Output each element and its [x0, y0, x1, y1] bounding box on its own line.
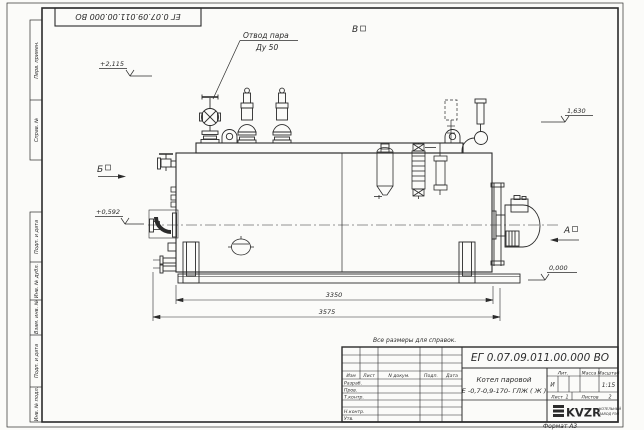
lit-value: И: [550, 382, 555, 389]
burner-unit: [492, 196, 540, 248]
elevation-0000: 0,000: [528, 264, 577, 280]
sig-row-label: Т.контр.: [344, 395, 364, 401]
product-name-line1: Котел паровой: [477, 376, 532, 384]
lit-label: Лит.: [557, 371, 569, 377]
sig-row-label: Пров.: [344, 388, 357, 394]
pressure-gauge-siphon: [462, 99, 488, 153]
left-angle-valve: [158, 154, 177, 171]
left-wall-nubs: [171, 187, 176, 207]
elevation-2115: +2,115: [99, 60, 152, 76]
sample-cooler: [374, 143, 393, 199]
svg-text:+2,115: +2,115: [100, 60, 124, 68]
margin-label: Взам. инв. №: [34, 300, 40, 334]
sig-row-label: Н.контр.: [344, 409, 365, 415]
svg-text:0,000: 0,000: [549, 264, 568, 272]
company-line1: КОТЕЛЬНЫЙ: [599, 406, 621, 411]
water-level-gauge-1: [412, 143, 425, 199]
company-line2: ЗАВОД РЭП: [599, 412, 620, 416]
water-level-gauge-2: [425, 143, 447, 195]
callout-line1: Отвод пара: [243, 31, 289, 40]
scale-value: 1:15: [602, 382, 616, 389]
support-saddles: [183, 242, 475, 283]
rev-header-doc: N докум.: [388, 373, 409, 379]
sig-row-label: Разраб.: [344, 381, 362, 387]
lifting-lug-left: [222, 130, 237, 143]
sheet-value: 1: [565, 395, 568, 401]
lifting-lug-right: [445, 130, 460, 143]
steam-outlet-callout: Отвод пара Ду 50: [213, 31, 298, 99]
margin-label: Подп. и дата: [34, 344, 40, 378]
margin-label: Подп. и дата: [34, 220, 40, 254]
steam-valve: [200, 95, 221, 144]
svg-text:В: В: [352, 25, 358, 35]
rev-header-date: Дата: [445, 373, 458, 379]
sig-row-label: Утв.: [344, 416, 354, 422]
callout-line2: Ду 50: [255, 43, 278, 52]
safety-valve-1: [238, 88, 256, 143]
elevation-1630: 1,630: [541, 107, 593, 122]
company-logo-text: KVZR: [566, 406, 601, 420]
feed-elbow: [149, 210, 178, 238]
base-frame-rail: [178, 274, 520, 283]
boiler-body: [148, 143, 560, 283]
dim-inner-text: 3350: [326, 291, 343, 299]
view-labels: Б В А: [97, 25, 579, 242]
company-logo: KVZR КОТЕЛЬНЫЙ ЗАВОД РЭП: [553, 405, 621, 420]
dim-overall-text: 3575: [319, 308, 336, 316]
burner-motor-ribs: [506, 231, 519, 246]
rear-downcomer-duct: [491, 183, 504, 266]
svg-text:+0,592: +0,592: [96, 208, 120, 216]
elevation-0592: +0,592: [95, 208, 144, 224]
sheets-value: 2: [608, 395, 611, 401]
view-label-b: Б: [97, 165, 126, 179]
dimension-3350: 3350: [176, 285, 493, 304]
reference-note: Все размеры для справок.: [373, 337, 456, 344]
blueprint-canvas: Перв. примен. Справ. № Подп. и дата Инв.…: [0, 0, 644, 430]
sheets-label: Листов: [580, 395, 598, 401]
rev-header-izm: Изм: [346, 373, 356, 379]
blowdown-stubs: [153, 243, 176, 273]
future-fitting-dashed: [445, 100, 457, 143]
product-name-line2: Е -0,7-0,9-170- ГЛЖ ( Ж ): [462, 387, 546, 395]
view-label-a: А: [550, 226, 579, 242]
safety-valve-2: [273, 88, 291, 143]
sheet-label: Лист: [550, 395, 563, 401]
margin-label: Перв. примен.: [34, 41, 40, 79]
rev-header-sign: Подп.: [424, 373, 438, 379]
doc-number: ЕГ 0.07.09.011.00.000 ВО: [471, 352, 609, 364]
margin-labels: Перв. примен. Справ. № Подп. и дата Инв.…: [34, 41, 40, 421]
drawing-sheet: Перв. примен. Справ. № Подп. и дата Инв.…: [0, 0, 644, 430]
format-label: Формат А3: [543, 423, 577, 430]
handhole-oval: [228, 236, 254, 255]
stamp-doc-number: ЕГ 0.07.09.011.00.000 ВО: [75, 12, 180, 21]
mass-label: Масса: [582, 371, 597, 377]
margin-label: Справ. №: [34, 118, 40, 142]
view-label-v: В: [352, 25, 366, 35]
scale-label: Масштаб: [598, 371, 620, 377]
margin-label: Инв. № дубл.: [34, 264, 40, 298]
svg-text:А: А: [563, 226, 570, 236]
svg-text:Б: Б: [97, 165, 103, 175]
rev-header-list: Лист: [362, 373, 375, 379]
svg-text:1,630: 1,630: [567, 107, 586, 115]
margin-label: Инв. № подл.: [34, 387, 40, 422]
